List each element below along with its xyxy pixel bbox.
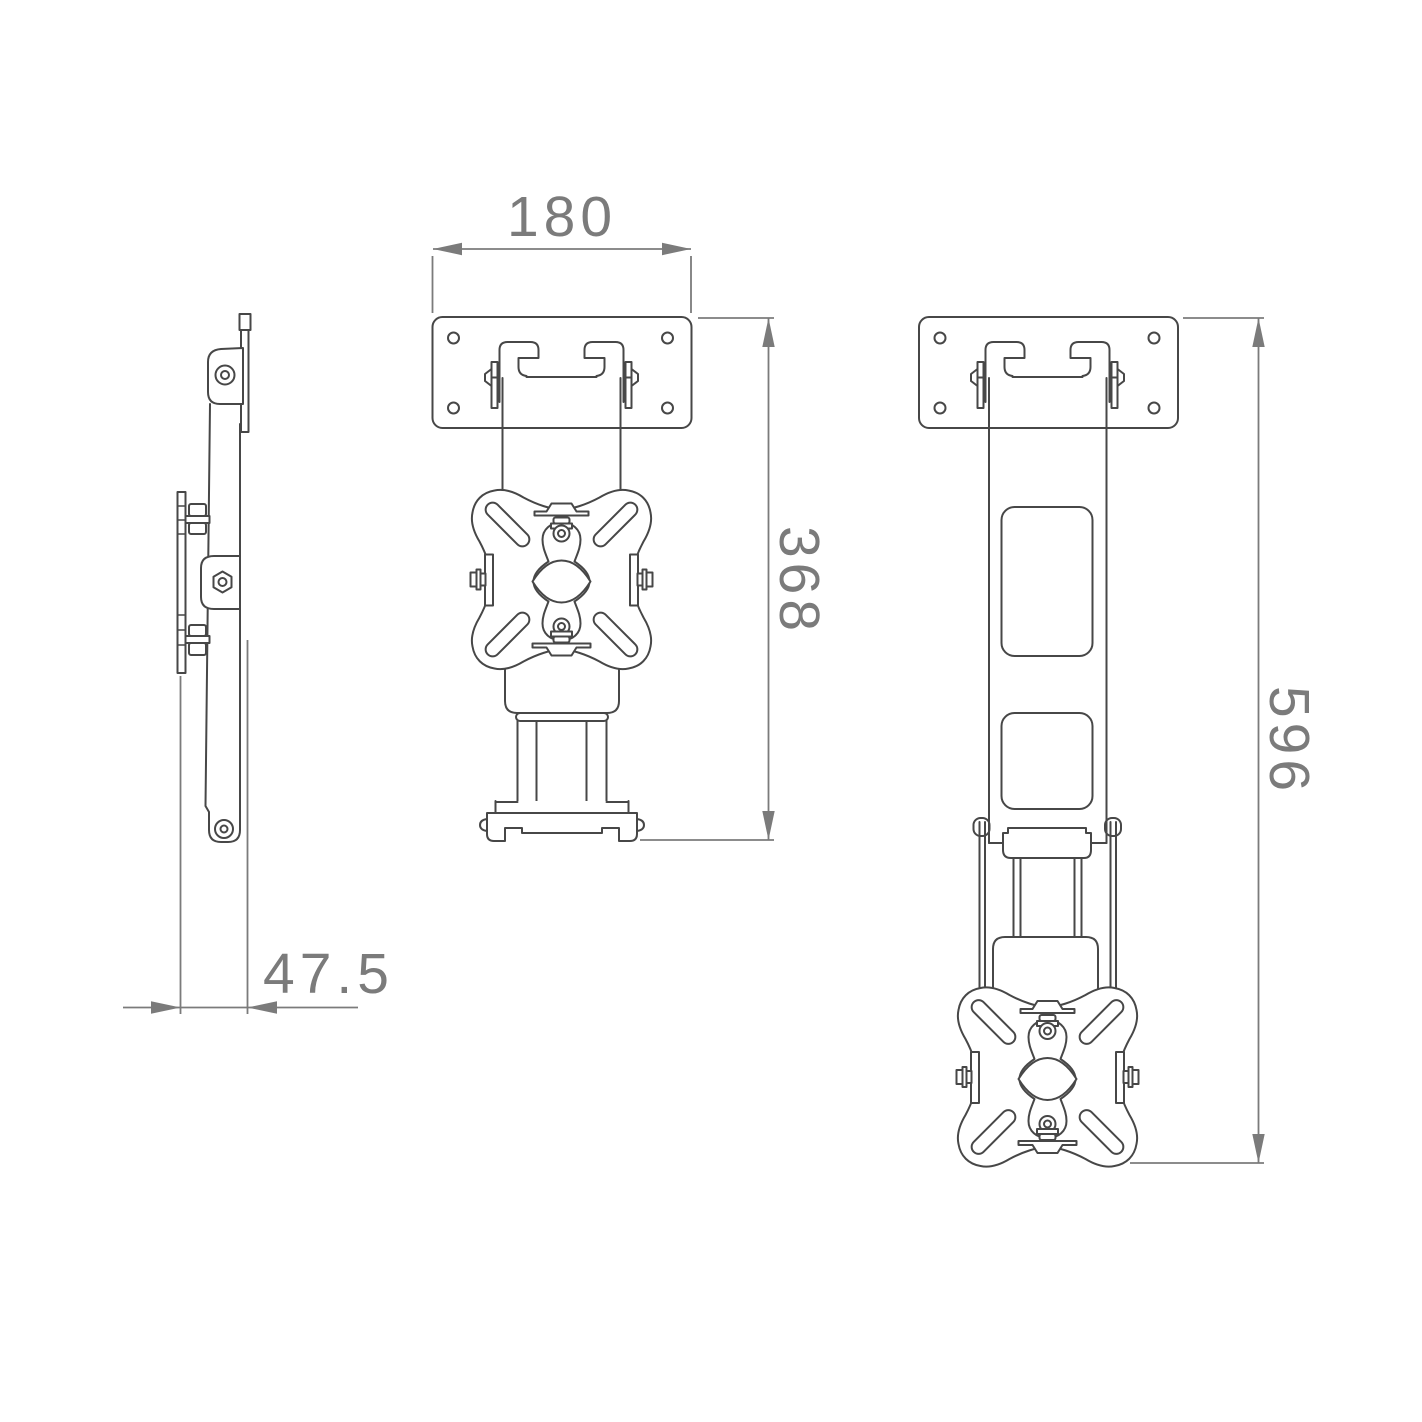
side-pivot-bracket (208, 348, 243, 404)
dimension-width-value: 180 (507, 185, 617, 249)
arrow-down (762, 811, 774, 840)
side-bottom-bolt (186, 625, 210, 655)
wall-plate (433, 317, 692, 428)
dimension-depth-value: 47.5 (263, 942, 394, 1006)
arrow-right (151, 1001, 181, 1013)
arrow-right (662, 243, 691, 255)
arrow-up (762, 318, 774, 347)
side-arm (206, 404, 241, 842)
dimension-height-368-value: 368 (767, 526, 831, 636)
arrow-up (1252, 318, 1264, 347)
dimension-labels: 180 368 596 47.5 (263, 185, 1321, 1006)
drawing (178, 314, 1179, 1167)
arm-slot-lower (1002, 713, 1093, 809)
front-view-extended (919, 317, 1178, 1167)
slide-foot (480, 801, 644, 841)
arm-slot-upper (1002, 507, 1093, 656)
side-view (178, 314, 251, 842)
pivot-block-lip (516, 713, 608, 721)
dimension-width-180 (433, 249, 692, 313)
side-tilt-nut (214, 572, 232, 593)
wall-plate (919, 317, 1178, 428)
dimension-height-596-value: 596 (1257, 686, 1321, 796)
inner-slide (518, 721, 607, 803)
front-view-retracted (433, 317, 692, 841)
vesa-adapter-plate (957, 987, 1139, 1166)
arm-nub-left (974, 818, 990, 836)
arm-bottom-profile (989, 828, 1107, 843)
arrow-down (1252, 1134, 1264, 1163)
vesa-adapter-plate (471, 490, 653, 669)
dimension-height-596 (1130, 318, 1264, 1163)
side-vesa-plate-edge (178, 492, 186, 673)
inner-slide-extended (1003, 843, 1091, 937)
technical-drawing-canvas: 180 368 596 47.5 (0, 0, 1422, 1422)
arrow-left (433, 243, 462, 255)
drawing-page: 180 368 596 47.5 (0, 0, 1422, 1422)
side-top-bolt (186, 504, 210, 534)
